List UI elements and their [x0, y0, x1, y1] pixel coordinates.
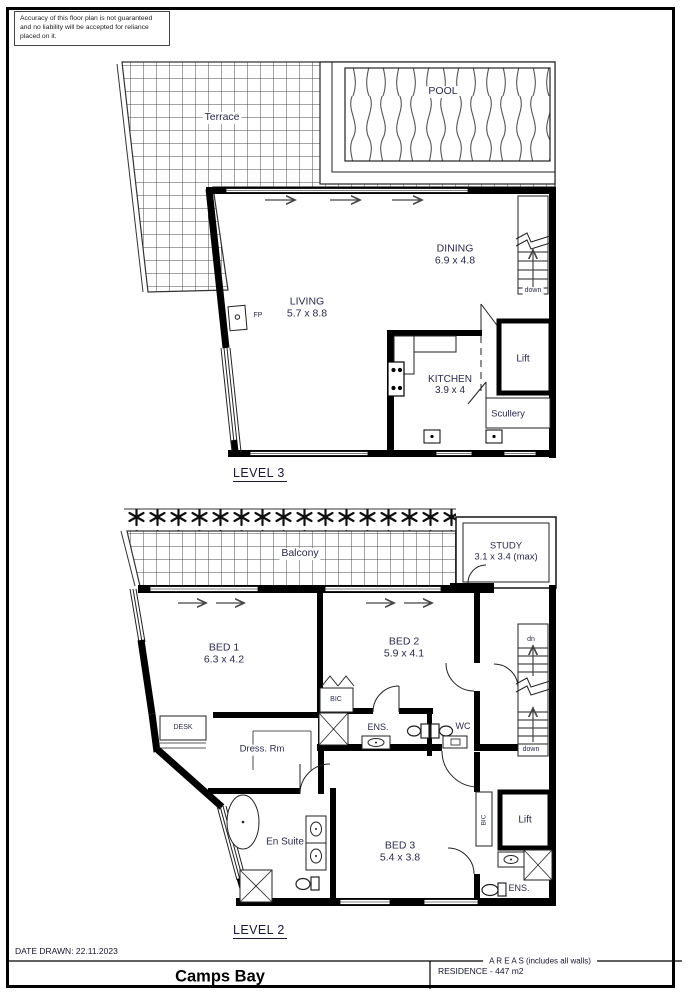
bed1-dims: 6.3 x 4.2: [204, 654, 244, 666]
date-drawn: DATE DRAWN: 22.11.2023: [15, 946, 118, 956]
main-ensuite-fixtures: [227, 795, 326, 902]
bed2-name: BED 2: [384, 636, 424, 648]
residence-area: RESIDENCE - 447 m2: [438, 966, 524, 976]
dining-room-name: DINING: [435, 243, 475, 255]
bed2-ensuite-fixtures: [319, 713, 467, 749]
balcony-label: Balcony: [279, 548, 320, 560]
bed1-label: BED 1 6.3 x 4.2: [204, 642, 244, 666]
bed2-ensuite-label: ENS.: [367, 722, 388, 732]
bed2-dims: 5.9 x 4.1: [384, 648, 424, 660]
wc-label: WC: [456, 721, 471, 731]
desk-label: DESK: [173, 724, 192, 732]
stairs-down-level2-label: down: [521, 746, 542, 754]
study-label: STUDY 3.1 x 3.4 (max): [474, 541, 537, 562]
floorplan-page: Accuracy of this floor plan is not guara…: [0, 0, 688, 1000]
living-room-label: LIVING 5.7 x 8.8: [287, 296, 327, 320]
dining-room-label: DINING 6.9 x 4.8: [435, 243, 475, 267]
fireplace-label: FP: [254, 312, 263, 320]
bed3-label: BED 3 5.4 x 3.8: [380, 840, 420, 864]
dining-room-dims: 6.9 x 4.8: [435, 255, 475, 267]
level3-title: LEVEL 3: [233, 466, 287, 482]
kitchen-name: KITCHEN: [428, 374, 472, 385]
living-room-name: LIVING: [287, 296, 327, 308]
level2-stairs: [494, 624, 550, 756]
study-dims: 3.1 x 3.4 (max): [474, 552, 537, 563]
areas-header: A R E A S (includes all walls): [483, 957, 597, 966]
kitchen-dims: 3.9 x 4: [428, 385, 472, 396]
bed3-ensuite-label: ENS.: [506, 883, 531, 893]
bic-level2-label: BIC: [480, 815, 487, 826]
stairs-down-level3-label: down: [523, 287, 544, 295]
floorplan-drawing: [0, 0, 688, 1000]
bed1-name: BED 1: [204, 642, 244, 654]
level2-planter-row: [124, 509, 456, 531]
lift-level2-label: Lift: [518, 814, 531, 825]
dressing-room-label: Dress. Rm: [238, 745, 287, 756]
level2-bic-closet: [320, 676, 354, 712]
disclaimer-note: Accuracy of this floor plan is not guara…: [14, 11, 170, 46]
kitchen-label: KITCHEN 3.9 x 4: [428, 374, 472, 396]
lift-level3-label: Lift: [516, 353, 529, 364]
level3-stairs: [516, 196, 550, 294]
living-room-dims: 5.7 x 8.8: [287, 308, 327, 320]
terrace-label: Terrace: [202, 112, 241, 124]
level2-title: LEVEL 2: [233, 923, 287, 939]
project-title: Camps Bay: [175, 968, 265, 987]
level3-pool: [320, 62, 555, 184]
bed2-label: BED 2 5.9 x 4.1: [384, 636, 424, 660]
scullery-label: Scullery: [491, 410, 525, 421]
bed3-dims: 5.4 x 3.8: [380, 852, 420, 864]
main-ensuite-label: En Suite: [266, 836, 304, 847]
pool-label: POOL: [426, 86, 459, 98]
bic-closet-label: BIC: [330, 696, 342, 704]
stairs-up-label: up: [527, 634, 535, 642]
bed3-name: BED 3: [380, 840, 420, 852]
fireplace: [228, 305, 247, 330]
